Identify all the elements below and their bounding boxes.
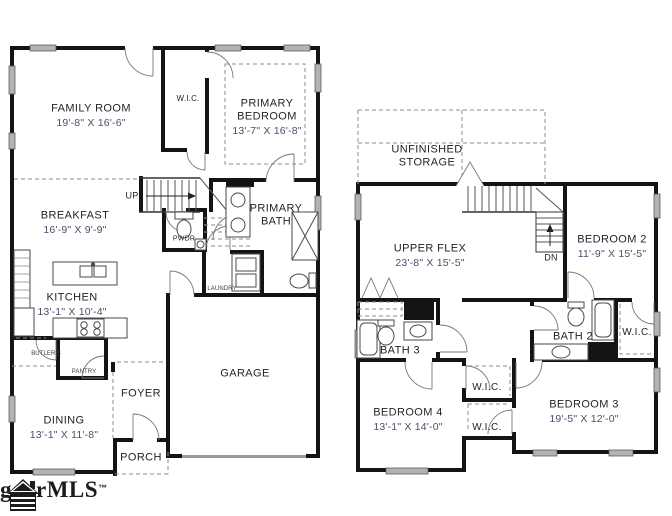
dining-dims: 13'-1" X 11'-8": [30, 430, 99, 441]
bath2-label: BATH 2: [553, 332, 593, 343]
porch-label: PORCH: [120, 453, 162, 464]
first-floor-stairs: [139, 178, 228, 212]
second-floor-stairs: [462, 186, 563, 252]
logo-trademark: ™: [98, 483, 107, 493]
kitchen-dims: 13'-1" X 10'-4": [37, 307, 106, 318]
bath3-label: BATH 3: [380, 346, 420, 357]
stairs-dn-label: DN: [544, 254, 558, 263]
bedroom2-label: BEDROOM 2: [577, 235, 647, 246]
foyer-label: FOYER: [121, 389, 161, 400]
butlers-label: BUTLER'S: [31, 351, 61, 357]
bedroom3-dims: 19'-5" X 12'-0": [549, 414, 618, 425]
primary-bedroom-dims: 13'-7" X 16'-8": [232, 126, 301, 137]
primary-bath-label: PRIMARY: [250, 204, 303, 215]
upper-flex-dims: 23'-8" X 15'-5": [395, 258, 464, 269]
unfinished-storage-label: UNFINISHED: [391, 145, 462, 156]
breakfast-label: BREAKFAST: [41, 211, 109, 222]
primary-bath-label2: BATH: [261, 217, 291, 228]
floor-plan-drawing: [0, 0, 672, 516]
bedroom4-dims: 13'-1" X 14'-0": [373, 422, 442, 433]
family-room-dims: 19'-8" X 16'-6": [56, 118, 125, 129]
wic-mid-lower-label: W.I.C.: [472, 423, 502, 433]
primary-bedroom-label2: BEDROOM: [237, 112, 297, 123]
dining-label: DINING: [44, 416, 85, 427]
primary-bedroom-label: PRIMARY: [241, 99, 294, 110]
floor-plan-page: FAMILY ROOM 19'-8" X 16'-6" W.I.C. PRIMA…: [0, 0, 672, 516]
kitchen-label: KITCHEN: [46, 293, 97, 304]
mls-logo: ggarMLS ™: [6, 477, 107, 503]
laundry-label: LAUNDRY: [207, 286, 236, 292]
unfinished-storage-label2: STORAGE: [399, 158, 455, 169]
garage-label: GARAGE: [220, 369, 269, 380]
bedroom2-dims: 11'-9" X 15'-5": [578, 249, 647, 260]
breakfast-dims: 16'-9" X 9'-9": [43, 225, 106, 236]
pantry-label: PANTRY: [72, 369, 96, 375]
pwdr-label: PWDR: [173, 236, 195, 243]
wic-mid-upper-label: W.I.C.: [472, 383, 502, 393]
upper-flex-label: UPPER FLEX: [394, 244, 466, 255]
bedroom4-label: BEDROOM 4: [373, 408, 443, 419]
family-room-label: FAMILY ROOM: [51, 104, 131, 115]
stairs-up-label: UP: [125, 192, 138, 201]
wic-label-floor1: W.I.C.: [177, 95, 200, 103]
bedroom3-label: BEDROOM 3: [549, 400, 619, 411]
house-icon: [6, 477, 40, 513]
wic-right-label: W.I.C.: [622, 328, 652, 338]
